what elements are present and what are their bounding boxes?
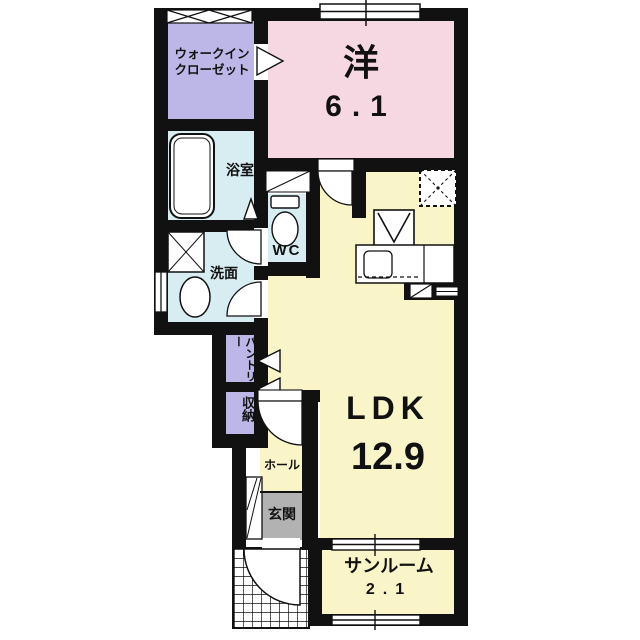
western-door-leaf	[318, 159, 354, 171]
label-wc: WC	[264, 242, 310, 261]
hall-door-leaf	[258, 390, 302, 401]
room-ldk-nook	[266, 276, 324, 392]
label-storage: 収納	[230, 396, 254, 436]
label-washroom: 洗面	[196, 265, 252, 283]
window-icon-left	[155, 272, 167, 312]
label-bathroom: 浴室	[212, 162, 268, 180]
wc-shelf-icon	[266, 171, 310, 192]
window-icon-kitchen	[436, 287, 458, 296]
wall-below-washroom	[154, 322, 268, 335]
bathtub-icon	[170, 134, 214, 218]
label-walk-in-closet: ウォークイン クローゼット	[168, 47, 256, 78]
label-sunroom: サンルーム	[322, 555, 456, 578]
wall-door-stub	[352, 172, 366, 218]
lattice-window-icon	[167, 10, 252, 23]
wall-sunroom-left	[308, 538, 322, 626]
label-hall: ホール	[258, 458, 306, 473]
label-entrance: 玄関	[258, 506, 306, 524]
floor-plan: ウォークイン クローゼット 洋 6.1 浴室 洗面 WC パントリー 収納 LD…	[0, 0, 640, 640]
refrigerator-space-icon	[420, 170, 456, 206]
label-walk-in-closet-line2: クローゼット	[168, 63, 256, 79]
kitchen-counter-icon	[356, 245, 454, 283]
stove-icon	[374, 210, 414, 246]
kitchen-sink-icon	[364, 251, 392, 278]
label-western-room-area: 6.1	[266, 88, 456, 126]
label-walk-in-closet-line1: ウォークイン	[168, 47, 256, 63]
label-ldk-area: 12.9	[320, 434, 456, 482]
wall-hall-right	[302, 398, 318, 550]
label-pantry: パントリー	[227, 336, 256, 382]
pipe-space-icon	[410, 284, 432, 298]
vanity-sink-icon	[180, 277, 210, 317]
wall-right	[454, 8, 468, 626]
label-western-room: 洋	[266, 40, 456, 85]
label-ldk: LDK	[320, 388, 456, 428]
wall-left-lower	[232, 442, 246, 548]
wall-below-closet	[154, 119, 268, 131]
label-sunroom-area: 2.1	[322, 580, 456, 600]
toilet-icon	[271, 196, 299, 246]
